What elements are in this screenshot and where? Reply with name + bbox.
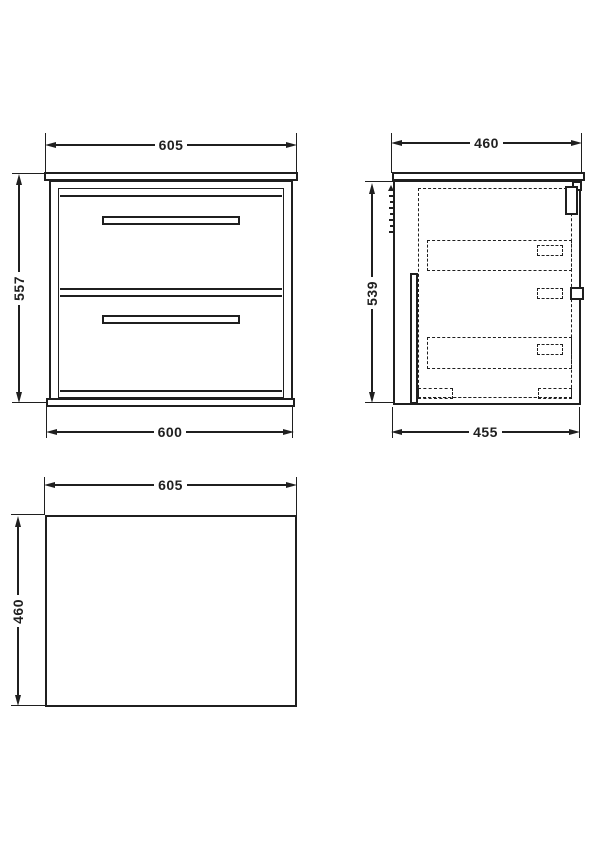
dim-label: 605 bbox=[154, 478, 187, 492]
arrow-up-icon bbox=[15, 516, 21, 527]
arrow-right-icon bbox=[286, 482, 297, 488]
plan-view: 605 460 bbox=[0, 0, 600, 849]
dimension-line bbox=[17, 627, 19, 695]
dim-plan-width: 605 bbox=[44, 478, 297, 492]
plan-worktop-outline bbox=[45, 515, 297, 707]
vanity-technical-drawing: 605 557 bbox=[0, 0, 600, 849]
dimension-line bbox=[17, 527, 19, 595]
extension-line bbox=[11, 514, 45, 515]
arrow-down-icon bbox=[15, 695, 21, 706]
dimension-line bbox=[187, 484, 286, 486]
dim-plan-depth: 460 bbox=[10, 516, 26, 706]
arrow-left-icon bbox=[44, 482, 55, 488]
dim-label: 460 bbox=[11, 595, 25, 628]
dimension-line bbox=[55, 484, 154, 486]
